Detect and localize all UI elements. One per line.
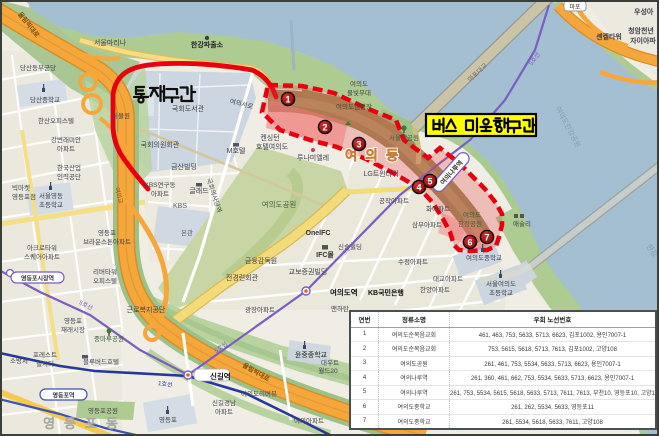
svg-text:5: 5 bbox=[427, 176, 432, 186]
svg-text:금융감독원: 금융감독원 bbox=[245, 256, 277, 265]
svg-text:당산중학교: 당산중학교 bbox=[30, 95, 60, 104]
svg-text:KBS연구동: KBS연구동 bbox=[145, 181, 176, 189]
svg-text:대교아파트: 대교아파트 bbox=[433, 274, 463, 283]
svg-text:여의도리버뷰: 여의도리버뷰 bbox=[241, 389, 277, 398]
svg-text:한강파출소: 한강파출소 bbox=[191, 40, 224, 49]
svg-text:켄싱턴: 켄싱턴 bbox=[260, 133, 279, 142]
svg-text:1: 1 bbox=[285, 94, 290, 104]
svg-text:4: 4 bbox=[416, 182, 421, 192]
svg-text:국회의원회관: 국회의원회관 bbox=[141, 140, 180, 149]
svg-text:영등포역: 영등포역 bbox=[52, 392, 74, 400]
svg-text:여의아파트: 여의아파트 bbox=[294, 416, 324, 425]
svg-text:우성아: 우성아 bbox=[634, 7, 654, 16]
svg-text:서울여의도: 서울여의도 bbox=[486, 279, 516, 288]
svg-text:윤중중학교: 윤중중학교 bbox=[295, 350, 328, 359]
svg-text:빅마켓: 빅마켓 bbox=[12, 183, 30, 192]
svg-text:본관: 본관 bbox=[181, 228, 193, 237]
svg-text:한국산업: 한국산업 bbox=[57, 163, 81, 172]
svg-text:영등포: 영등포 bbox=[159, 415, 177, 424]
svg-text:한양아파트: 한양아파트 bbox=[420, 285, 450, 294]
svg-text:한강공원: 한강공원 bbox=[458, 219, 482, 228]
svg-text:삼부아파트: 삼부아파트 bbox=[412, 220, 442, 229]
svg-text:수정아파트: 수정아파트 bbox=[398, 257, 428, 266]
svg-text:중마루공원: 중마루공원 bbox=[94, 334, 124, 343]
svg-text:월드20: 월드20 bbox=[318, 366, 338, 375]
svg-text:2: 2 bbox=[322, 122, 327, 132]
svg-text:신길경남: 신길경남 bbox=[212, 398, 236, 407]
svg-text:전경련회관: 전경련회관 bbox=[226, 273, 259, 282]
svg-text:영등포동: 영등포동 bbox=[43, 416, 127, 431]
svg-text:초등학교: 초등학교 bbox=[39, 200, 63, 209]
svg-text:금산빌딩: 금산빌딩 bbox=[171, 162, 197, 171]
svg-text:스퀘어아파트: 스퀘어아파트 bbox=[24, 252, 60, 261]
svg-text:맨하탄: 맨하탄 bbox=[331, 304, 349, 313]
svg-text:청암천년: 청암천년 bbox=[628, 26, 654, 35]
svg-text:재래시장: 재래시장 bbox=[61, 325, 85, 334]
svg-text:신길역: 신길역 bbox=[210, 371, 231, 381]
svg-text:여의도: 여의도 bbox=[463, 210, 481, 219]
svg-text:인력공단: 인력공단 bbox=[57, 172, 81, 181]
svg-text:초등학교: 초등학교 bbox=[489, 288, 513, 297]
svg-text:호텔여의도: 호텔여의도 bbox=[256, 142, 289, 151]
svg-text:한산오피스텔: 한산오피스텔 bbox=[38, 116, 74, 125]
svg-text:식물원: 식물원 bbox=[112, 111, 130, 120]
svg-text:대우트: 대우트 bbox=[321, 359, 339, 367]
svg-text:광장아파트: 광장아파트 bbox=[245, 305, 275, 314]
svg-text:아크로타워: 아크로타워 bbox=[27, 243, 57, 252]
svg-text:7: 7 bbox=[484, 232, 489, 242]
svg-text:서울영동: 서울영동 bbox=[39, 191, 63, 200]
svg-text:영등포시장역: 영등포시장역 bbox=[21, 275, 54, 283]
svg-text:국회도서관: 국회도서관 bbox=[172, 104, 205, 113]
svg-text:IFC몰: IFC몰 bbox=[316, 250, 334, 259]
svg-text:3: 3 bbox=[356, 139, 361, 149]
svg-text:서울색공원: 서울색공원 bbox=[389, 133, 419, 142]
svg-text:여의도역: 여의도역 bbox=[330, 287, 358, 297]
svg-text:화아파트: 화아파트 bbox=[426, 204, 450, 213]
svg-text:물빛무대: 물빛무대 bbox=[347, 88, 371, 97]
svg-text:교보증권빌딩: 교보증권빌딩 bbox=[289, 267, 328, 276]
svg-text:자이아파: 자이아파 bbox=[630, 36, 656, 45]
svg-text:여의도: 여의도 bbox=[350, 79, 368, 88]
svg-text:셴켈타워: 셴켈타워 bbox=[596, 32, 622, 41]
svg-text:리버타워: 리버타워 bbox=[93, 267, 117, 276]
svg-text:여의도중학교: 여의도중학교 bbox=[466, 253, 502, 262]
svg-text:오피스텔: 오피스텔 bbox=[93, 276, 117, 285]
svg-text:당산동부군당: 당산동부군당 bbox=[20, 63, 56, 72]
svg-text:힐시티: 힐시티 bbox=[36, 359, 54, 368]
svg-text:6: 6 bbox=[467, 237, 472, 247]
svg-text:루나미엘레: 루나미엘레 bbox=[297, 153, 329, 162]
svg-text:KBS: KBS bbox=[173, 203, 187, 210]
svg-text:아파트: 아파트 bbox=[57, 144, 75, 153]
svg-text:강변래미안: 강변래미안 bbox=[51, 135, 81, 144]
svg-text:공작아파트: 공작아파트 bbox=[379, 196, 409, 205]
svg-text:영등포공원: 영등포공원 bbox=[88, 406, 118, 415]
svg-text:영등포: 영등포 bbox=[64, 316, 82, 325]
svg-text:애슐리: 애슐리 bbox=[513, 219, 531, 228]
svg-text:서울마리나: 서울마리나 bbox=[94, 38, 127, 47]
svg-text:OnelFC: OnelFC bbox=[306, 230, 331, 237]
svg-text:포레스트: 포레스트 bbox=[33, 350, 57, 359]
svg-text:여의도캠핑장: 여의도캠핑장 bbox=[336, 102, 372, 111]
svg-text:글래드: 글래드 bbox=[189, 186, 209, 195]
svg-text:KB국민은행: KB국민은행 bbox=[368, 288, 404, 297]
svg-text:마포: 마포 bbox=[569, 3, 581, 11]
svg-text:여의도공원: 여의도공원 bbox=[262, 199, 297, 209]
svg-text:영등포: 영등포 bbox=[98, 228, 116, 237]
svg-text:블루버드호텔: 블루버드호텔 bbox=[83, 357, 119, 366]
svg-text:브라운스톤아파트: 브라운스톤아파트 bbox=[83, 237, 131, 246]
svg-text:아파트: 아파트 bbox=[215, 407, 233, 416]
svg-text:소방서: 소방서 bbox=[10, 356, 28, 365]
svg-text:근로복지공단: 근로복지공단 bbox=[127, 305, 166, 314]
svg-text:M호텔: M호텔 bbox=[227, 147, 246, 155]
svg-text:영등포점: 영등포점 bbox=[12, 192, 36, 201]
svg-text:LG트윈타워: LG트윈타워 bbox=[363, 169, 398, 178]
svg-text:아파트: 아파트 bbox=[151, 189, 169, 198]
